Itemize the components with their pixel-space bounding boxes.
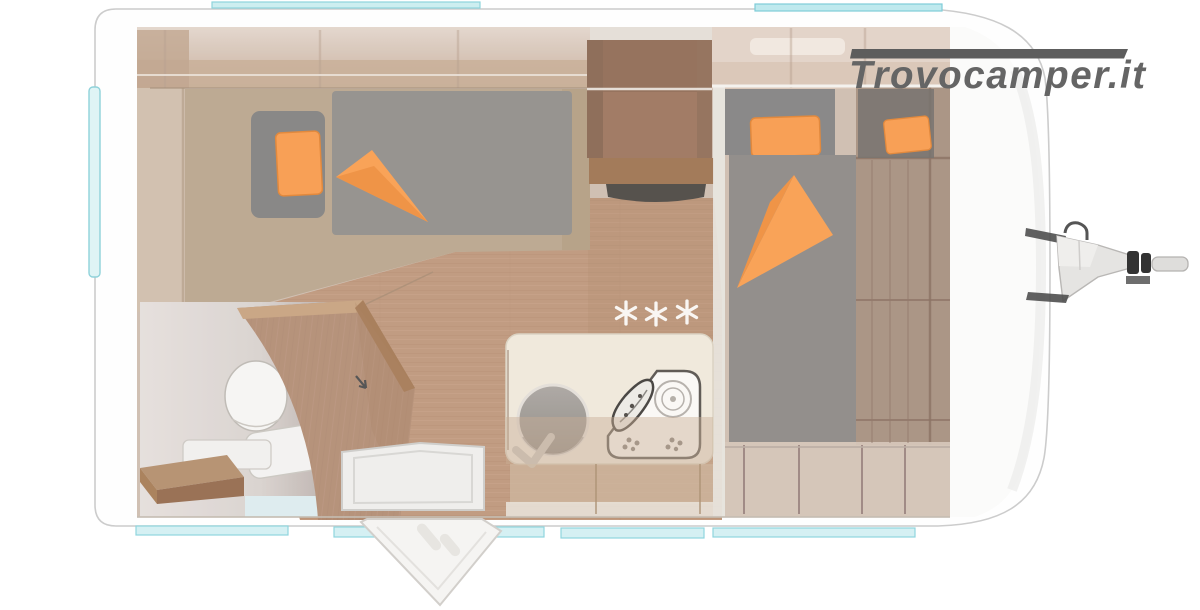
svg-text:Trovocamper.it: Trovocamper.it xyxy=(849,54,1147,97)
